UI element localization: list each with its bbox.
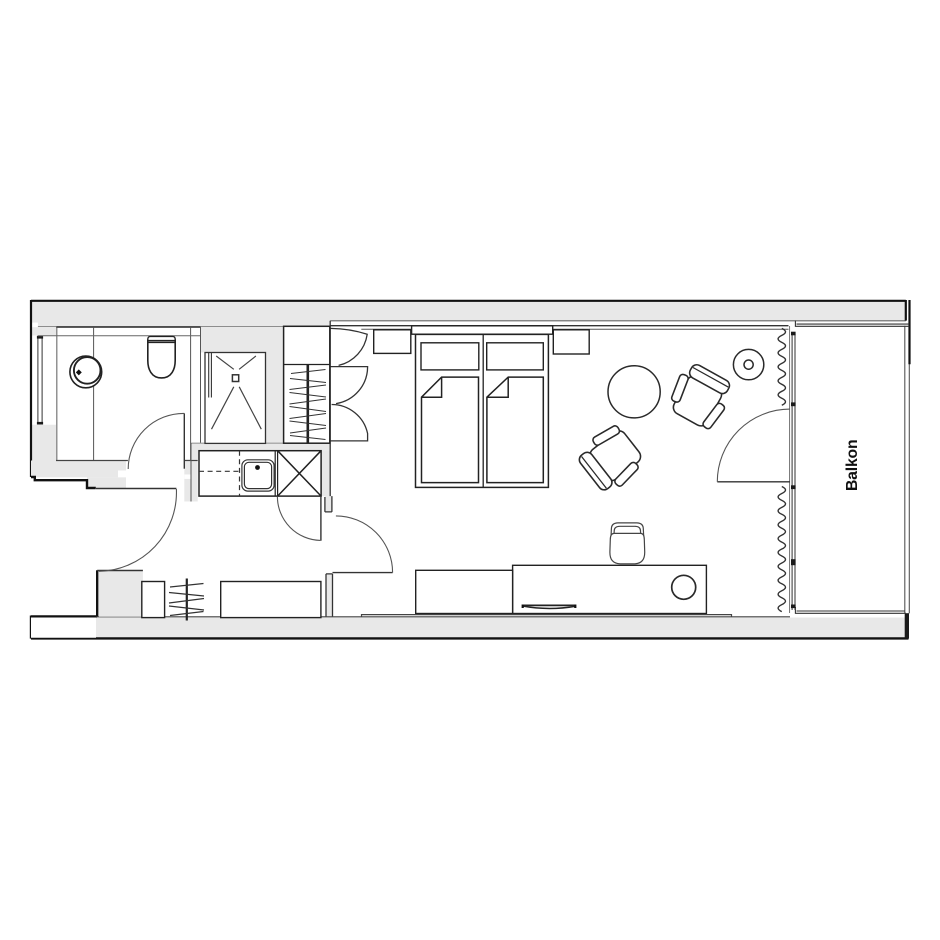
svg-text:Balkon: Balkon <box>844 440 861 491</box>
